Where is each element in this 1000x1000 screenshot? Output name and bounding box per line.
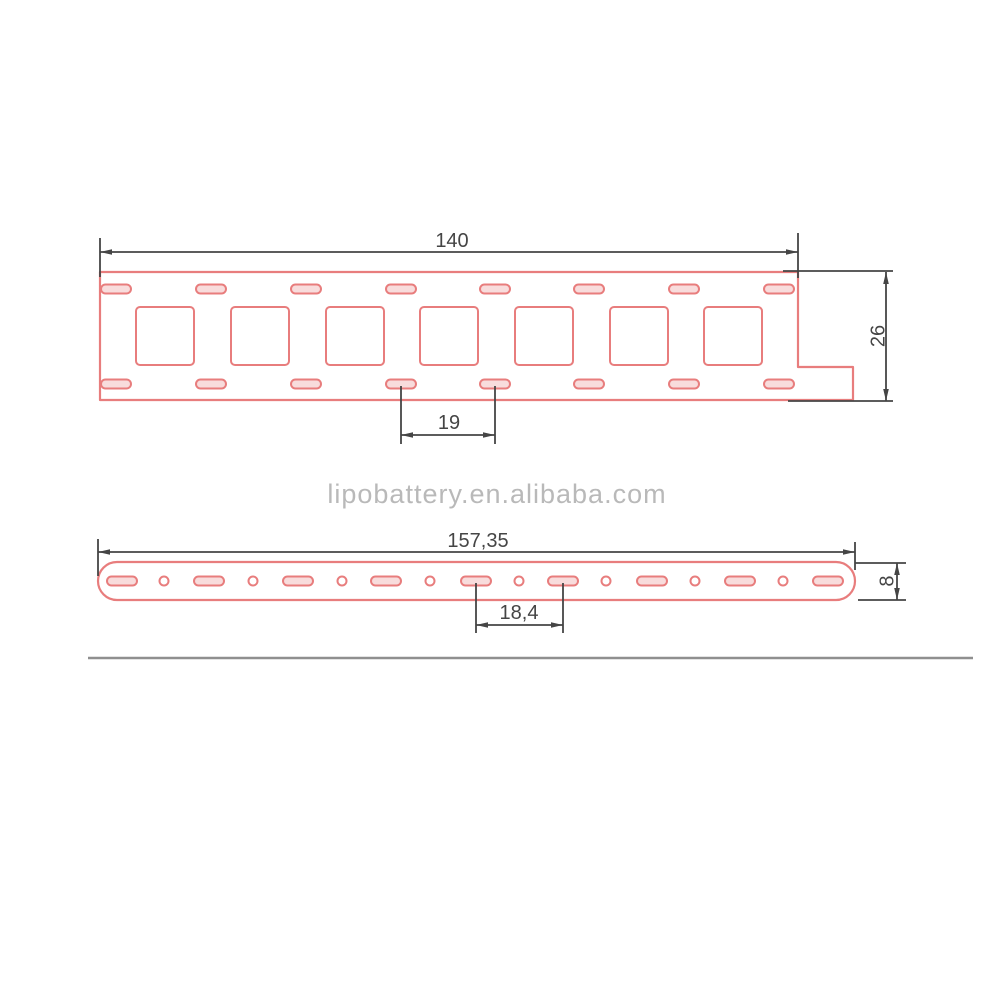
top-pitch-dim-label: 19 bbox=[438, 412, 460, 434]
top-slot-hole bbox=[480, 285, 510, 294]
side-slot-hole bbox=[637, 577, 667, 586]
side-slot-hole bbox=[194, 577, 224, 586]
side-slot-hole bbox=[813, 577, 843, 586]
top-slot-hole bbox=[196, 285, 226, 294]
technical-drawing-page: 140 26 19 lipobattery.en.alibaba.com bbox=[0, 0, 1000, 1000]
square-hole bbox=[136, 307, 194, 365]
side-height-dim-label: 8 bbox=[876, 575, 898, 586]
top-slot-hole bbox=[101, 380, 131, 389]
square-hole bbox=[704, 307, 762, 365]
technical-drawing-canvas: 140 26 19 lipobattery.en.alibaba.com bbox=[0, 0, 1000, 1000]
square-hole bbox=[420, 307, 478, 365]
dimension-length: 157,35 bbox=[98, 530, 855, 576]
top-slot-hole bbox=[291, 285, 321, 294]
top-slot-hole bbox=[574, 380, 604, 389]
top-slot-hole bbox=[574, 285, 604, 294]
side-round-hole bbox=[515, 577, 524, 586]
dimension-width: 140 bbox=[100, 230, 798, 278]
square-hole bbox=[515, 307, 573, 365]
side-round-hole bbox=[249, 577, 258, 586]
top-slot-hole bbox=[291, 380, 321, 389]
dimension-thickness: 8 bbox=[855, 563, 906, 600]
top-slot-hole bbox=[669, 285, 699, 294]
side-round-hole bbox=[426, 577, 435, 586]
side-round-hole bbox=[338, 577, 347, 586]
dimension-side-pitch: 18,4 bbox=[476, 583, 563, 633]
watermark-text: lipobattery.en.alibaba.com bbox=[327, 479, 666, 509]
side-slot-hole bbox=[725, 577, 755, 586]
square-hole bbox=[231, 307, 289, 365]
side-view-drawing: 157,35 8 18,4 bbox=[98, 530, 906, 633]
dimension-slot-pitch: 19 bbox=[401, 386, 495, 444]
top-slot-hole bbox=[669, 380, 699, 389]
side-slot-hole bbox=[107, 577, 137, 586]
side-slot-hole bbox=[283, 577, 313, 586]
top-slot-hole bbox=[764, 285, 794, 294]
side-view-slot-holes bbox=[107, 577, 843, 586]
top-slot-hole bbox=[764, 380, 794, 389]
dimension-height: 26 bbox=[783, 271, 893, 401]
top-height-dim-label: 26 bbox=[867, 325, 889, 347]
square-hole bbox=[326, 307, 384, 365]
top-view-square-holes bbox=[136, 307, 762, 365]
side-round-hole bbox=[602, 577, 611, 586]
top-width-dim-label: 140 bbox=[435, 230, 468, 252]
side-pitch-dim-label: 18,4 bbox=[500, 602, 539, 624]
top-slot-hole bbox=[101, 285, 131, 294]
top-view-drawing: 140 26 19 bbox=[100, 230, 893, 444]
side-round-hole bbox=[160, 577, 169, 586]
square-hole bbox=[610, 307, 668, 365]
top-slot-hole bbox=[196, 380, 226, 389]
side-round-hole bbox=[691, 577, 700, 586]
top-slot-hole bbox=[386, 285, 416, 294]
top-view-slot-holes bbox=[101, 285, 794, 389]
side-length-dim-label: 157,35 bbox=[447, 530, 508, 552]
side-round-hole bbox=[779, 577, 788, 586]
side-slot-hole bbox=[371, 577, 401, 586]
